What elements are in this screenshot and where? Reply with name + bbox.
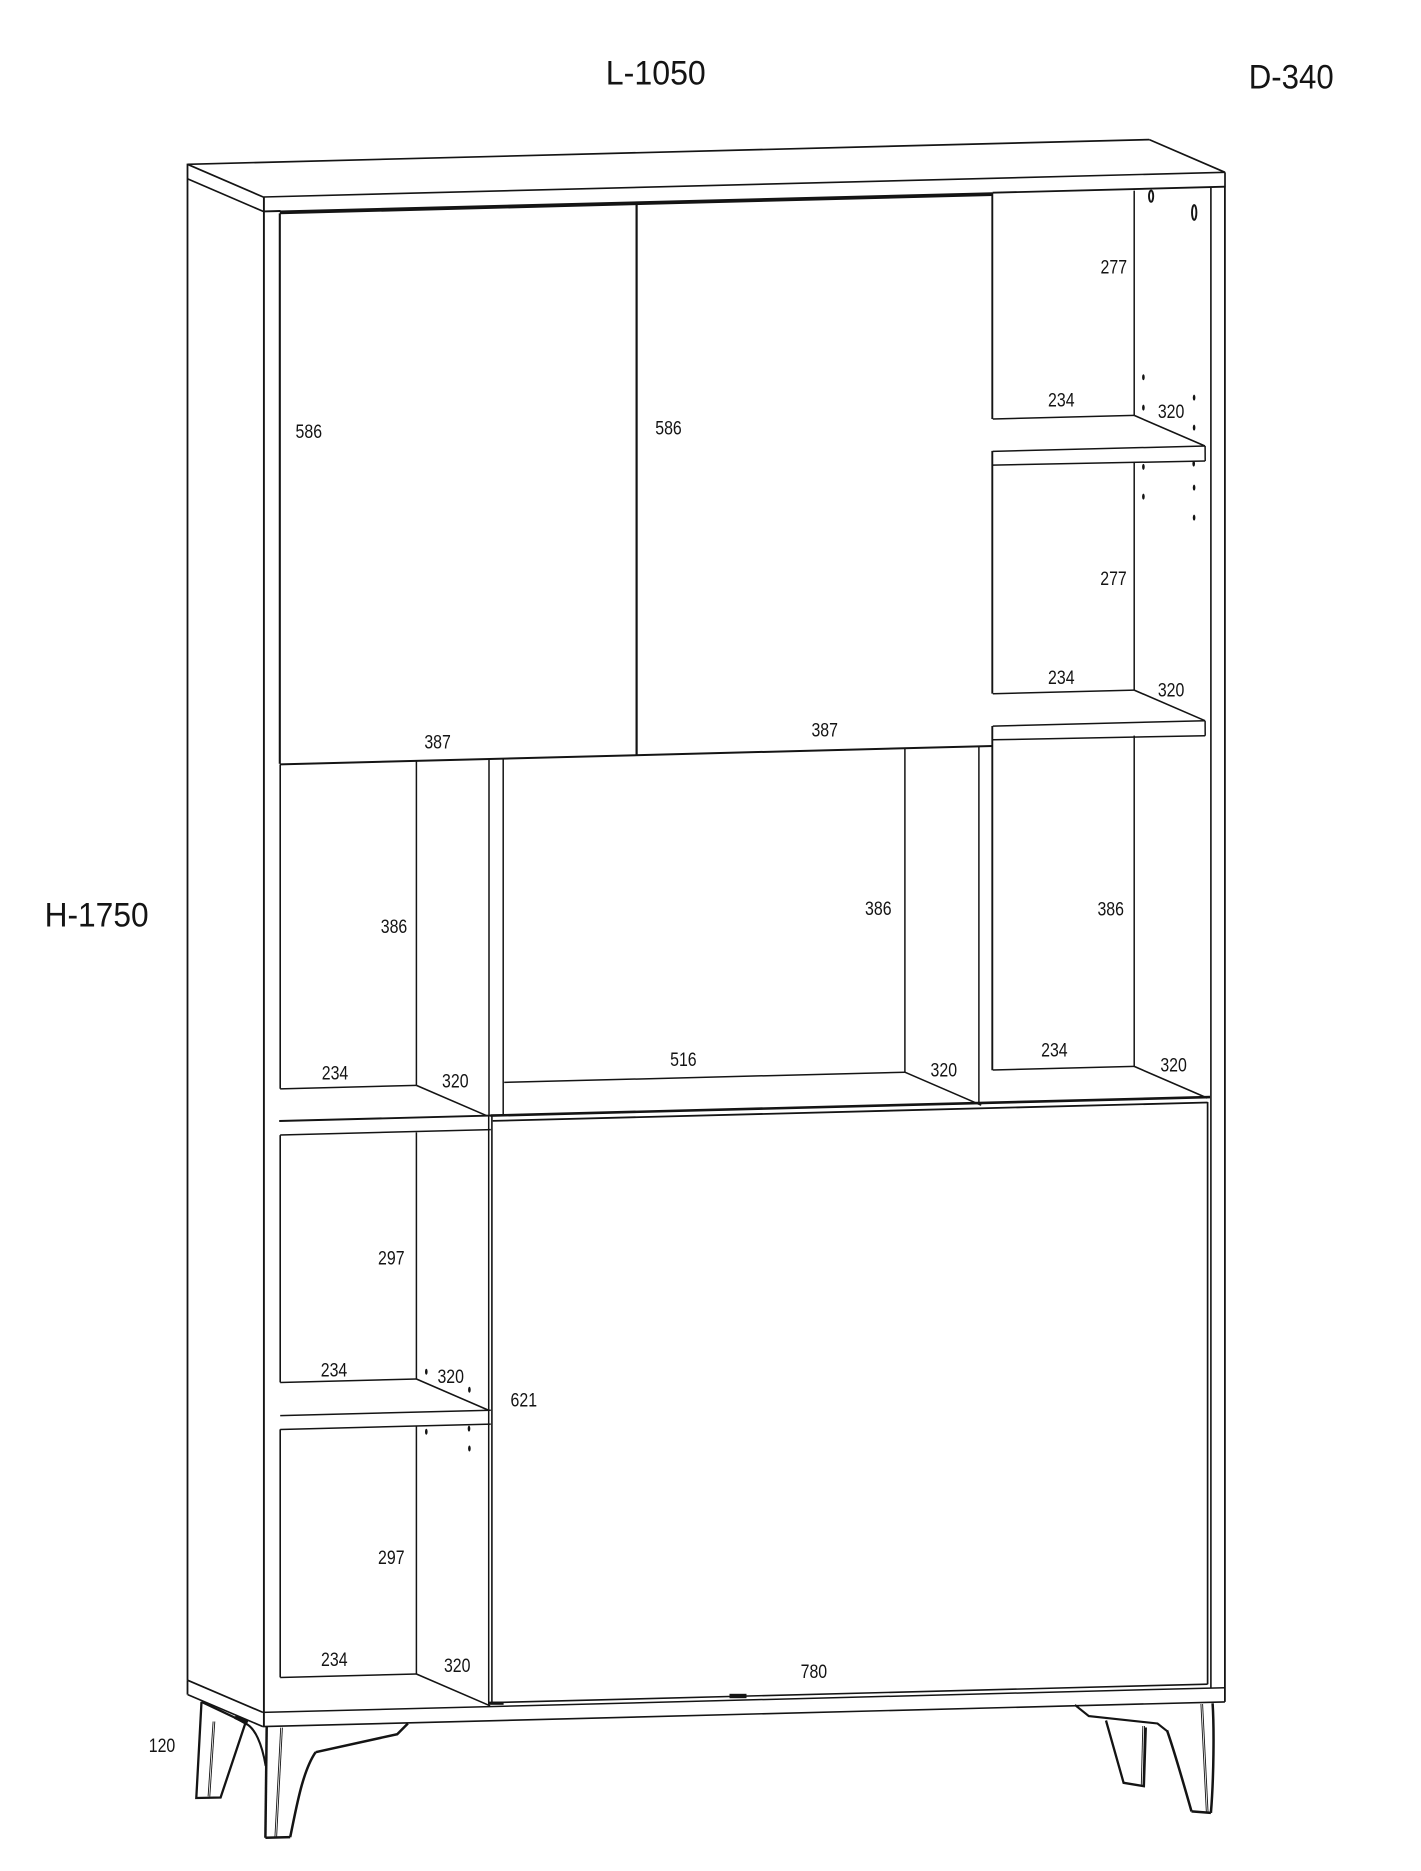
svg-text:L-1050: L-1050 (606, 55, 706, 93)
svg-text:277: 277 (1101, 257, 1128, 279)
svg-text:277: 277 (1100, 568, 1127, 590)
svg-text:234: 234 (1048, 667, 1075, 689)
svg-text:516: 516 (670, 1049, 697, 1071)
svg-text:320: 320 (931, 1059, 958, 1081)
svg-text:586: 586 (655, 418, 682, 440)
svg-text:586: 586 (296, 421, 323, 443)
svg-text:234: 234 (1041, 1040, 1068, 1062)
svg-text:780: 780 (801, 1661, 828, 1683)
svg-text:D-340: D-340 (1249, 59, 1334, 97)
svg-text:387: 387 (424, 732, 451, 754)
svg-text:386: 386 (865, 898, 892, 920)
svg-text:234: 234 (322, 1063, 349, 1085)
svg-text:387: 387 (811, 719, 838, 741)
svg-text:297: 297 (378, 1248, 405, 1270)
svg-text:234: 234 (321, 1359, 348, 1381)
svg-text:234: 234 (321, 1649, 348, 1671)
svg-text:386: 386 (381, 916, 408, 938)
svg-text:320: 320 (442, 1071, 469, 1093)
svg-text:320: 320 (1160, 1054, 1187, 1076)
svg-text:120: 120 (149, 1735, 176, 1757)
svg-text:386: 386 (1097, 899, 1124, 921)
svg-text:320: 320 (437, 1366, 464, 1388)
svg-text:234: 234 (1048, 390, 1075, 412)
svg-text:320: 320 (1158, 401, 1185, 423)
svg-text:320: 320 (444, 1655, 471, 1677)
svg-text:H-1750: H-1750 (45, 897, 149, 935)
svg-text:320: 320 (1158, 680, 1185, 702)
svg-text:297: 297 (378, 1547, 405, 1569)
svg-text:621: 621 (511, 1389, 538, 1411)
